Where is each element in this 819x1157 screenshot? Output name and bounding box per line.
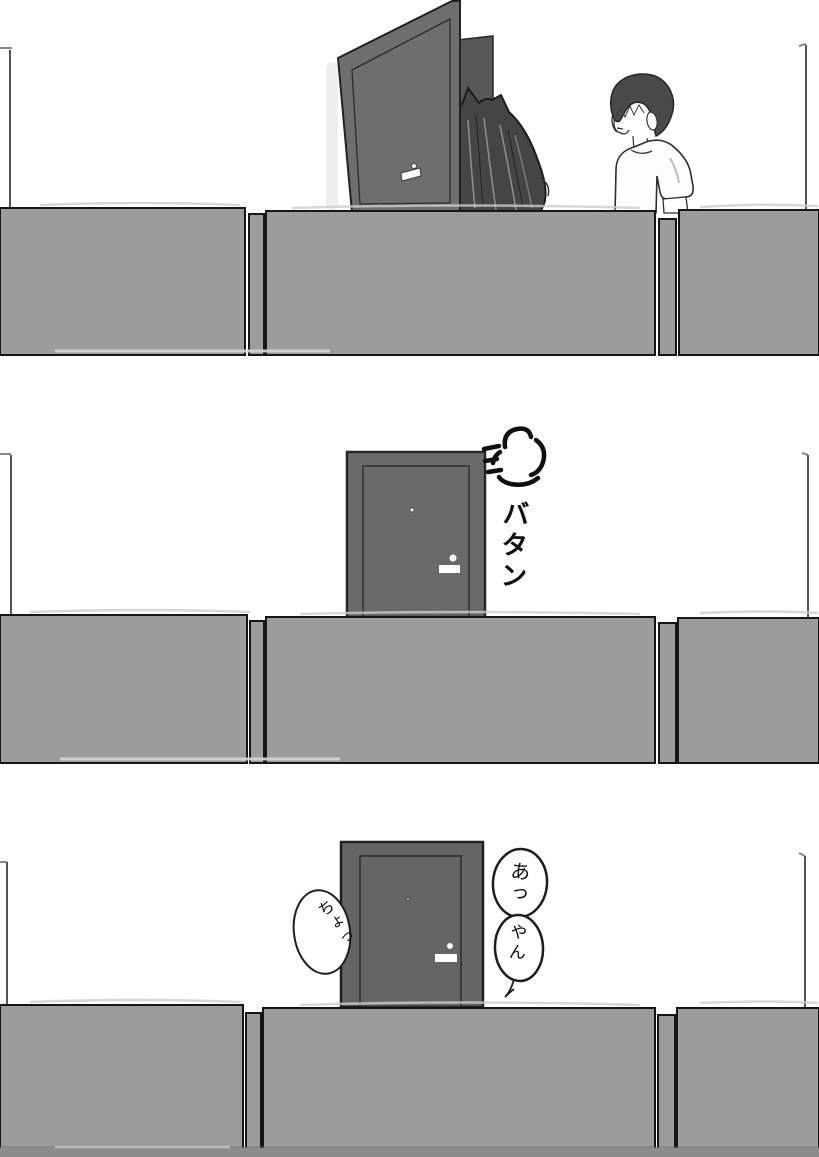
parapet-wall-middle [266, 617, 655, 763]
girl-entering [458, 88, 549, 213]
speech-text-right-top: あっ [505, 860, 529, 906]
speech-text-right-bottom: やん [505, 922, 525, 963]
puff-stroke [485, 459, 497, 461]
speech-bubble-tail [505, 979, 514, 997]
wall-joint-pillar [249, 214, 264, 355]
parapet-wall-left [0, 1005, 243, 1157]
boy-mouth [617, 128, 623, 129]
parapet-wall-middle [263, 1008, 655, 1157]
panel-1-open-door-scene [0, 0, 819, 390]
door-lock-dot [412, 164, 417, 169]
girl-hair-with-ears [458, 88, 546, 213]
peephole [410, 508, 414, 512]
open-door-leaf [338, 1, 460, 213]
impact-puff-mark [484, 429, 544, 485]
door-lock-dot [450, 555, 457, 562]
puff-stroke [505, 429, 531, 447]
puff-stroke [484, 446, 499, 449]
panel-2-door-slam-scene [0, 390, 819, 790]
puff-stroke [531, 440, 544, 475]
room-corner-line [802, 453, 808, 455]
sfx-door-slam-text: バタン [497, 499, 527, 593]
floor-strip [0, 1148, 819, 1157]
panel-3-speech-scene [0, 790, 819, 1157]
parapet-wall-right [679, 210, 819, 355]
parapet-wall-right [678, 618, 819, 763]
wall-joint-pillar [659, 219, 676, 355]
parapet-wall-left [0, 208, 245, 355]
parapet-wall-left [0, 615, 247, 763]
closed-door [347, 452, 485, 617]
door-handle [435, 954, 457, 962]
open-door [338, 1, 460, 213]
boy-hair [611, 74, 674, 136]
door-frame [347, 452, 485, 617]
puff-stroke [499, 477, 538, 485]
wall-joint-pillar [658, 1015, 675, 1157]
closed-door [341, 842, 483, 1007]
peephole [406, 897, 410, 901]
room-corner-line [799, 853, 805, 856]
door-handle [439, 565, 460, 573]
door-lock-dot [447, 943, 453, 949]
wall-joint-pillar [246, 1013, 261, 1157]
puff-stroke [488, 470, 501, 472]
room-corner-line [799, 44, 806, 46]
parapet-wall-right [677, 1008, 819, 1157]
manga-page: バタン ちょっ あっ やん [0, 0, 819, 1157]
boy-watching [611, 74, 693, 213]
wall-joint-pillar [659, 623, 676, 763]
parapet-wall-middle [266, 211, 655, 355]
wall-joint-pillar [250, 621, 264, 763]
door-shadow [326, 62, 338, 210]
